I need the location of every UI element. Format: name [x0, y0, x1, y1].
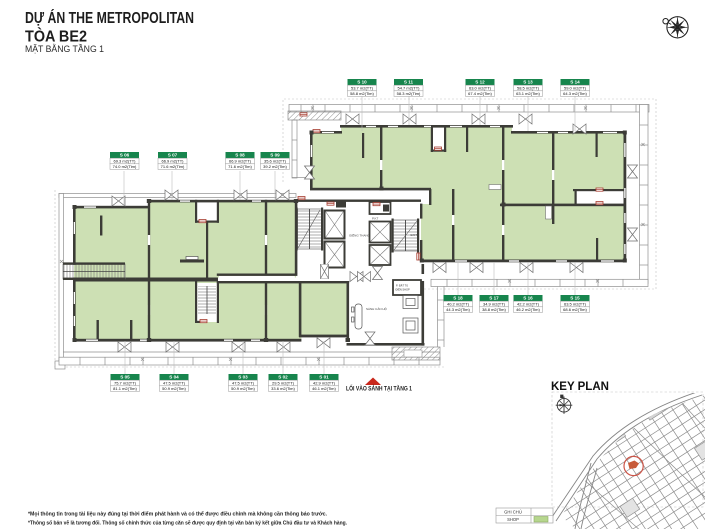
svg-text:44.3 m2(Tim): 44.3 m2(Tim): [446, 307, 470, 312]
svg-text:S 02: S 02: [278, 375, 288, 380]
svg-text:KEY PLAN: KEY PLAN: [551, 381, 609, 393]
svg-text:S 11: S 11: [404, 80, 414, 85]
svg-text:MẶT BẰNG TẦNG 1: MẶT BẰNG TẦNG 1: [25, 44, 104, 55]
svg-text:TÒA BE2: TÒA BE2: [25, 28, 87, 46]
svg-text:64.3 m2(Tim): 64.3 m2(Tim): [563, 91, 587, 96]
svg-text:S 14: S 14: [570, 80, 580, 85]
svg-text:59.0 m2(TT): 59.0 m2(TT): [564, 86, 587, 91]
svg-text:S 12: S 12: [475, 80, 485, 85]
svg-text:GHI CHÚ: GHI CHÚ: [504, 510, 522, 515]
svg-text:DỰ ÁN THE METROPOLITAN: DỰ ÁN THE METROPOLITAN: [25, 10, 194, 27]
svg-text:66.9 m2(TT): 66.9 m2(TT): [161, 159, 184, 164]
svg-text:40.2 m2(TT): 40.2 m2(TT): [447, 302, 470, 307]
svg-text:66.9 m2(TT): 66.9 m2(TT): [229, 159, 252, 164]
svg-text:*Mọi thông tin trong tài liệu: *Mọi thông tin trong tài liệu này đúng t…: [28, 511, 328, 518]
svg-text:S 03: S 03: [238, 375, 248, 380]
svg-text:GIẾNG THANG: GIẾNG THANG: [349, 233, 371, 238]
svg-text:P.KT: P.KT: [372, 217, 378, 221]
svg-text:S 13: S 13: [523, 80, 533, 85]
svg-text:SẢNH CĂN HỘ: SẢNH CĂN HỘ: [366, 306, 388, 311]
svg-text:S 07: S 07: [168, 153, 178, 158]
svg-text:SHOP: SHOP: [507, 517, 519, 522]
svg-text:71.6 m2(Tim): 71.6 m2(Tim): [228, 164, 252, 169]
svg-text:S 15: S 15: [570, 296, 580, 301]
svg-text:63.1 m2(Tim): 63.1 m2(Tim): [516, 91, 540, 96]
svg-text:S 09: S 09: [270, 153, 280, 158]
svg-text:*Thông số bản vẽ là tương đối.: *Thông số bản vẽ là tương đối. Thông số …: [28, 520, 348, 527]
svg-text:50.9 m2(Tim): 50.9 m2(Tim): [231, 386, 255, 391]
svg-text:35.6 m2(TT): 35.6 m2(TT): [264, 159, 287, 164]
svg-text:EXIT: EXIT: [411, 233, 418, 237]
svg-text:42.9 m2(TT): 42.9 m2(TT): [313, 381, 336, 386]
svg-text:58.5 m2(TT): 58.5 m2(TT): [517, 86, 540, 91]
svg-text:S 16: S 16: [523, 296, 533, 301]
svg-text:58.3 m2(Tim): 58.3 m2(Tim): [397, 91, 421, 96]
svg-text:74.0 m2(Tim): 74.0 m2(Tim): [113, 164, 137, 169]
svg-text:81.1 m2(Tim): 81.1 m2(Tim): [113, 386, 137, 391]
svg-text:S 17: S 17: [489, 296, 499, 301]
svg-text:33.6 m2(Tim): 33.6 m2(Tim): [271, 386, 295, 391]
svg-text:S 04: S 04: [169, 375, 179, 380]
svg-text:S 05: S 05: [120, 375, 130, 380]
svg-text:46.2 m2(Tim): 46.2 m2(Tim): [516, 307, 540, 312]
svg-text:S 10: S 10: [357, 80, 367, 85]
svg-text:47.5 m2(TT): 47.5 m2(TT): [163, 381, 186, 386]
svg-text:S 01: S 01: [319, 375, 329, 380]
svg-text:54.7 m2(TT): 54.7 m2(TT): [397, 86, 420, 91]
svg-text:46.1 m2(Tim): 46.1 m2(Tim): [312, 386, 336, 391]
svg-text:S 08: S 08: [235, 153, 245, 158]
svg-text:42.2 m2(TT): 42.2 m2(TT): [517, 302, 540, 307]
svg-text:71.6 m2(Tim): 71.6 m2(Tim): [161, 164, 185, 169]
svg-text:29.5 m2(TT): 29.5 m2(TT): [272, 381, 295, 386]
svg-text:63.5 m2(TT): 63.5 m2(TT): [564, 302, 587, 307]
svg-text:38.8 m2(Tim): 38.8 m2(Tim): [482, 307, 506, 312]
svg-text:50.9 m2(Tim): 50.9 m2(Tim): [162, 386, 186, 391]
svg-text:S 06: S 06: [120, 153, 130, 158]
svg-text:LỐI VÀO SẢNH TẠI TẦNG 1: LỐI VÀO SẢNH TẠI TẦNG 1: [346, 386, 412, 393]
svg-text:67.4 m2(Tim): 67.4 m2(Tim): [468, 91, 492, 96]
svg-text:63.0 m2(TT): 63.0 m2(TT): [469, 86, 492, 91]
svg-text:68.6 m2(Tim): 68.6 m2(Tim): [563, 307, 587, 312]
svg-text:S 18: S 18: [453, 296, 463, 301]
svg-text:75.7 m2(TT): 75.7 m2(TT): [114, 381, 137, 386]
svg-text:39.2 m2(Tim): 39.2 m2(Tim): [263, 164, 287, 169]
svg-text:47.5 m2(TT): 47.5 m2(TT): [232, 381, 255, 386]
svg-text:34.9 m2(TT): 34.9 m2(TT): [483, 302, 506, 307]
svg-text:58.8 m2(Tim): 58.8 m2(Tim): [350, 91, 374, 96]
svg-text:69.3 m2(TT): 69.3 m2(TT): [113, 159, 136, 164]
svg-text:53.7 m2(TT): 53.7 m2(TT): [351, 86, 374, 91]
